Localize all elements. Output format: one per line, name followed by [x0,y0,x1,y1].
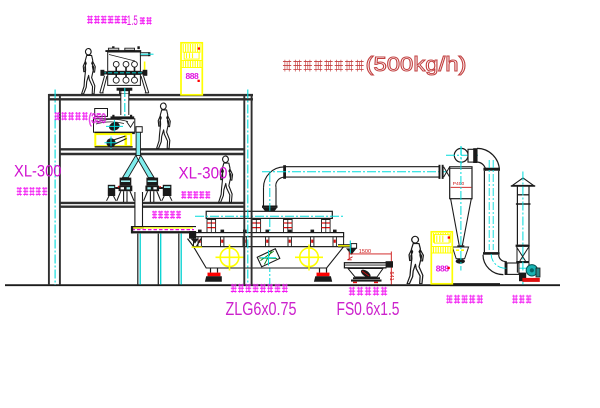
svg-text:541: 541 [388,272,394,281]
svg-text:ZLG6x0.75: ZLG6x0.75 [226,299,297,319]
svg-text:1500: 1500 [359,249,371,255]
svg-text:XL-300: XL-300 [179,164,228,182]
svg-text:(350: (350 [89,111,107,126]
svg-text:XL-300: XL-300 [14,162,62,180]
svg-text:FS0.6x1.5: FS0.6x1.5 [337,299,400,319]
svg-text:888: 888 [436,264,449,274]
svg-text:1.5: 1.5 [127,13,138,28]
svg-text:(500kg/h): (500kg/h) [366,54,467,76]
svg-text:P400: P400 [453,181,465,187]
svg-text:888: 888 [186,71,199,81]
